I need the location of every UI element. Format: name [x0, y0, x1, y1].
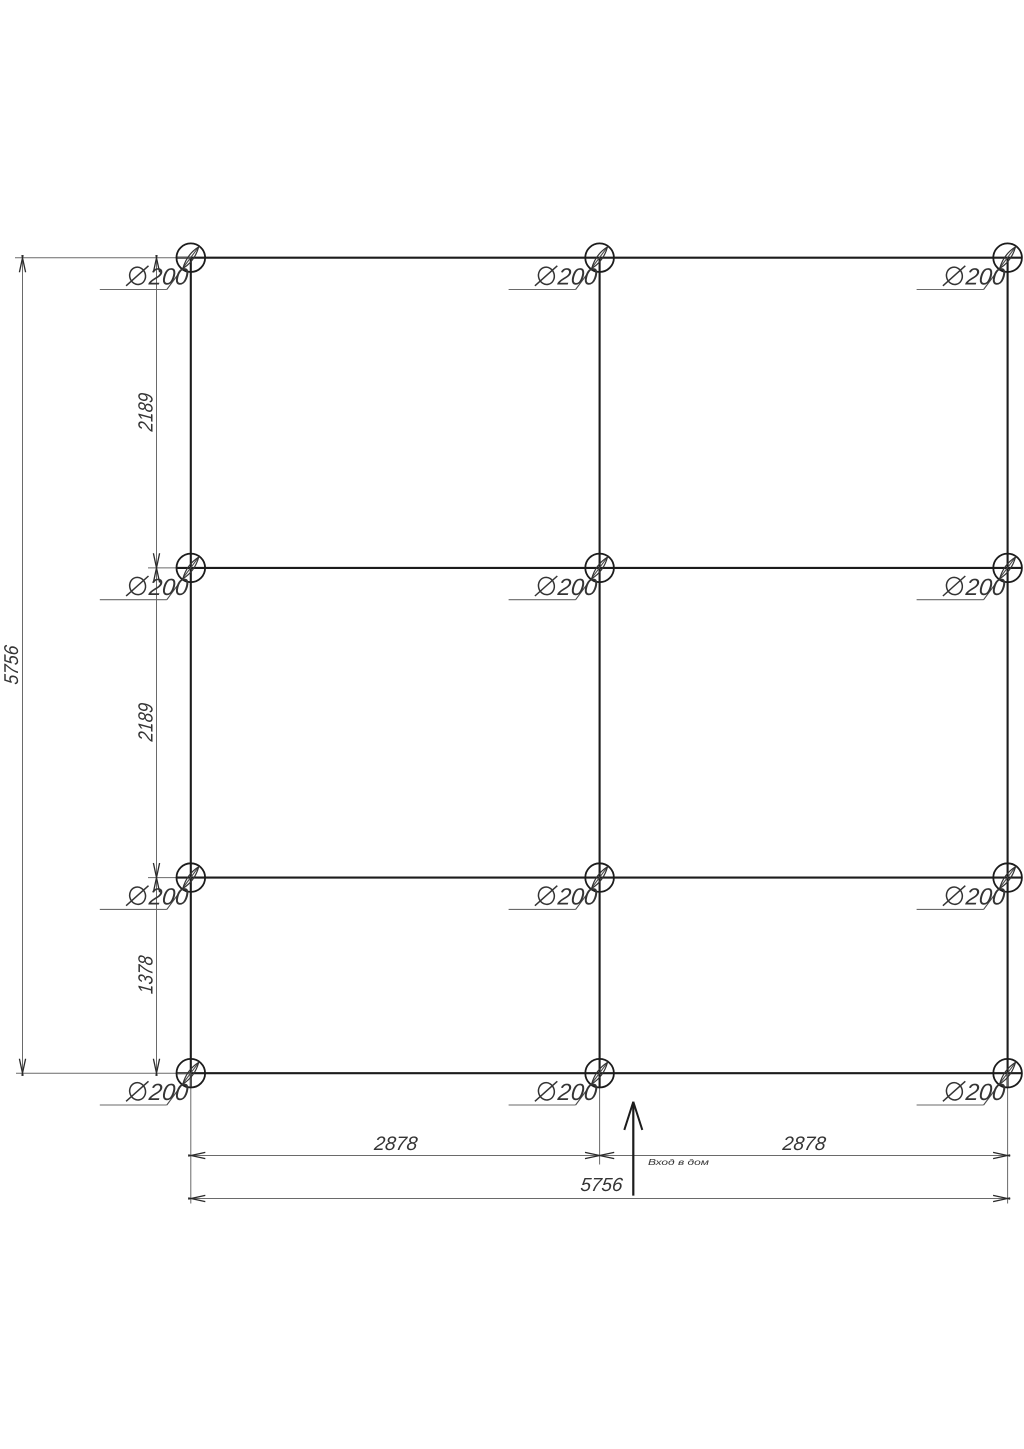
- svg-text:200: 200: [147, 574, 190, 600]
- svg-text:2878: 2878: [781, 1133, 827, 1155]
- svg-text:200: 200: [147, 1079, 190, 1105]
- svg-text:200: 200: [964, 574, 1007, 600]
- svg-text:200: 200: [556, 1079, 599, 1105]
- svg-text:200: 200: [556, 574, 599, 600]
- svg-text:2189: 2189: [135, 702, 158, 743]
- svg-text:2189: 2189: [135, 392, 158, 433]
- svg-text:1378: 1378: [135, 954, 158, 995]
- svg-text:200: 200: [147, 264, 190, 290]
- svg-text:200: 200: [147, 884, 190, 910]
- svg-text:200: 200: [964, 884, 1007, 910]
- svg-text:200: 200: [556, 884, 599, 910]
- svg-text:200: 200: [964, 1079, 1007, 1105]
- svg-text:200: 200: [964, 264, 1007, 290]
- svg-text:2878: 2878: [372, 1133, 418, 1155]
- svg-text:Вход в дом: Вход в дом: [648, 1158, 710, 1167]
- svg-text:200: 200: [556, 264, 599, 290]
- svg-text:5756: 5756: [579, 1175, 624, 1196]
- svg-text:5756: 5756: [1, 643, 23, 685]
